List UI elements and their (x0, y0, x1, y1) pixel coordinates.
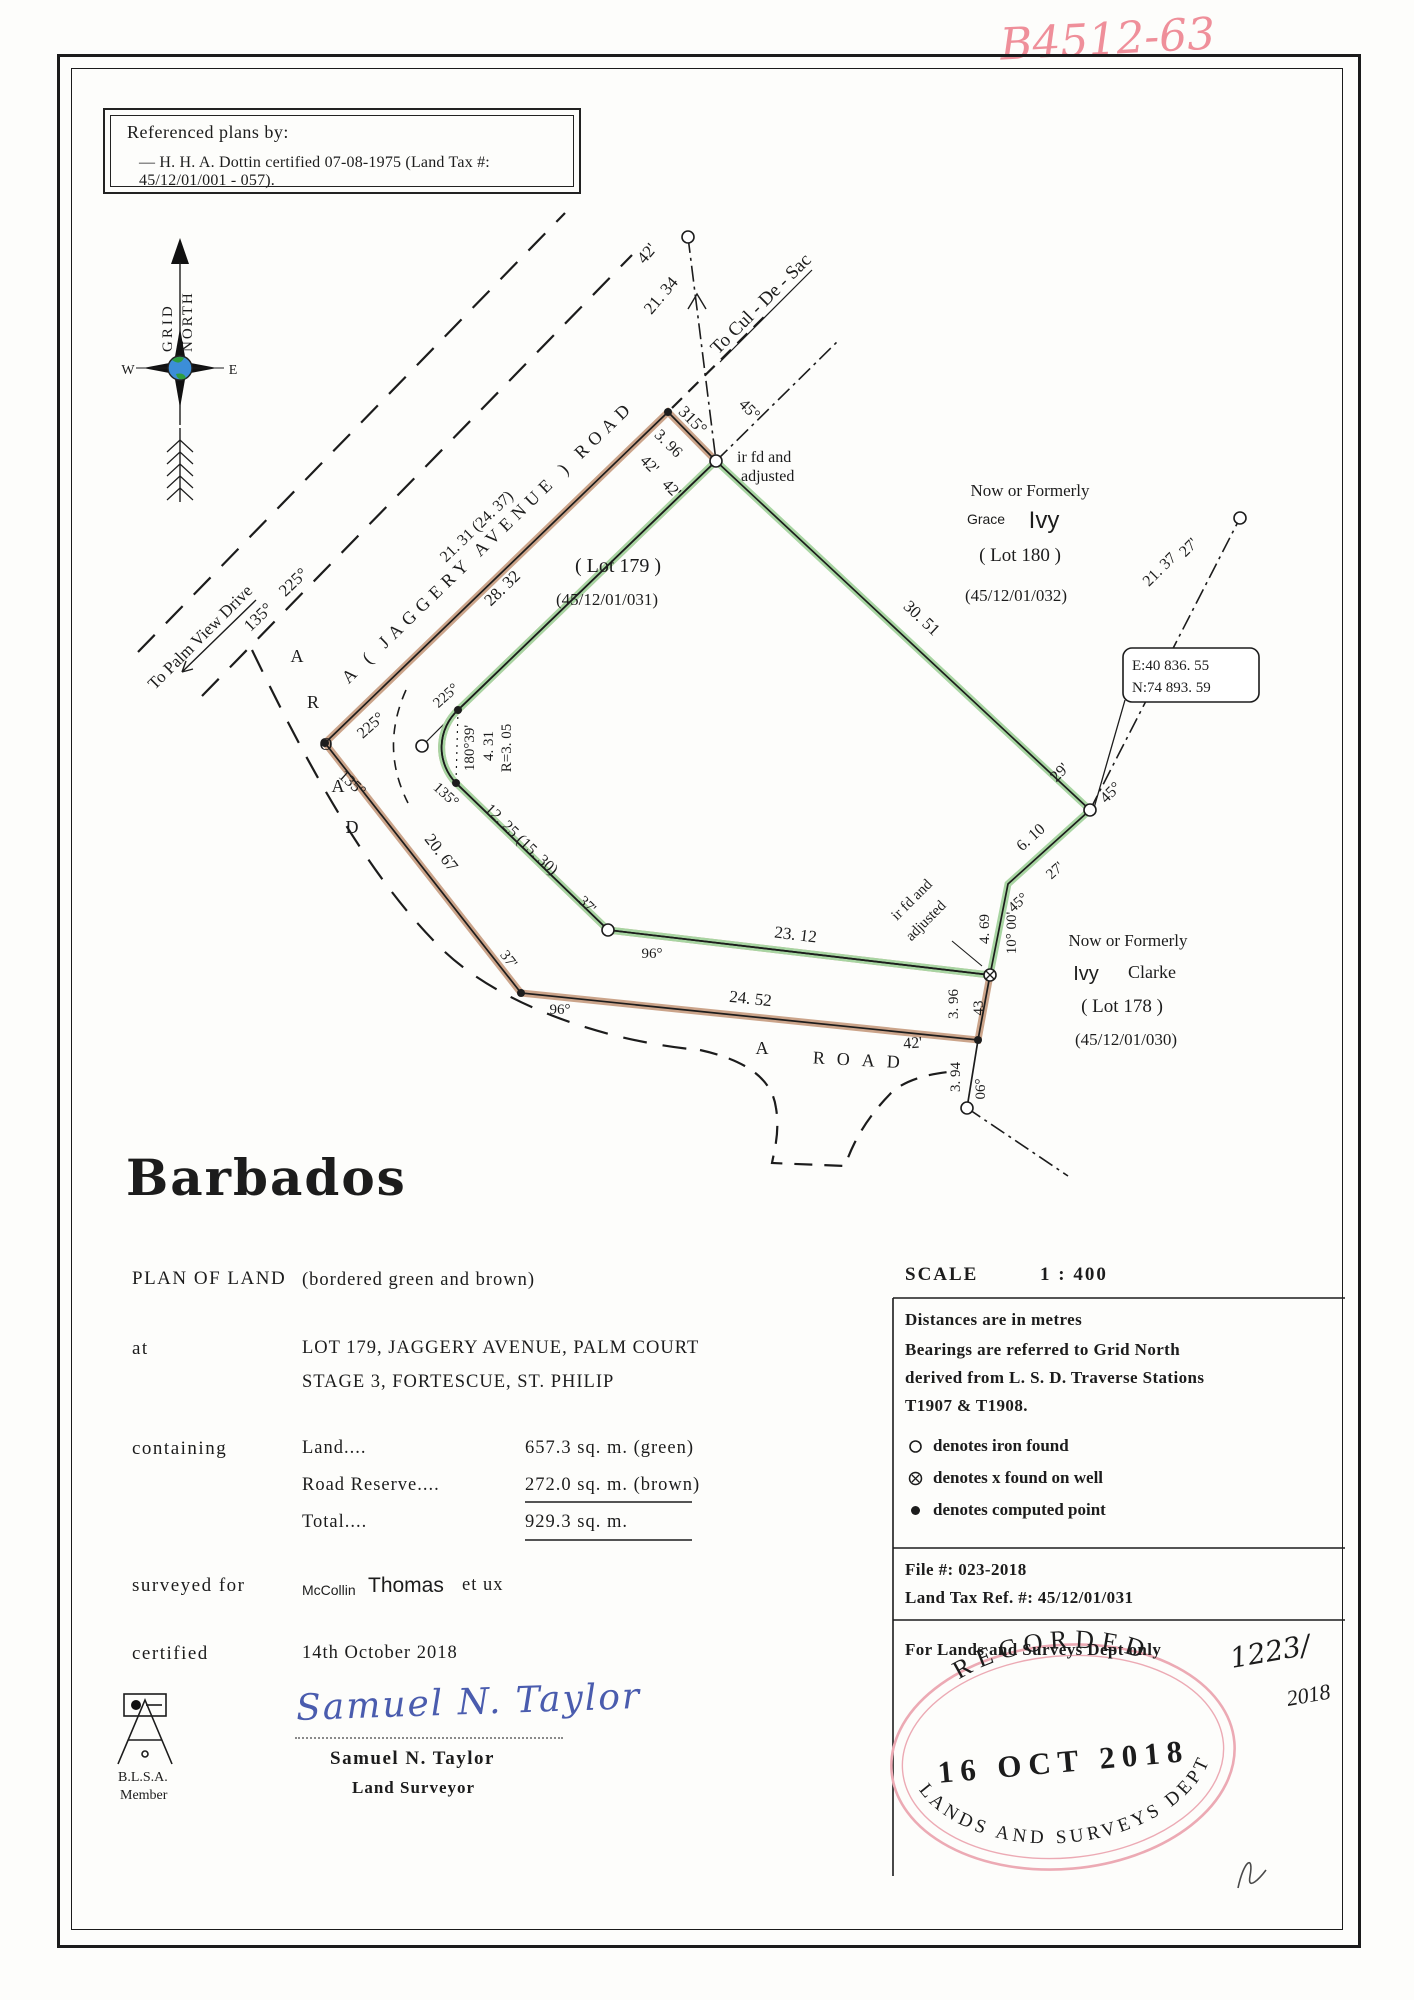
compass-north-label: NORTH (180, 291, 196, 352)
plan-label: 29' (1047, 760, 1072, 785)
compass-west-label: W (121, 363, 135, 378)
handwritten-record-number: 1223/ (1227, 1628, 1315, 1675)
client-name-prefix: McCollin (302, 1582, 356, 1598)
scale-value: 1 : 400 (1040, 1264, 1108, 1286)
handwritten-record-year: 2018 (1285, 1679, 1333, 1711)
plan-label: To Cul - De - Sac (707, 250, 816, 359)
plan-label: A (291, 646, 304, 666)
bordered-note: (bordered green and brown) (302, 1270, 535, 1291)
plan-label: Ivy (1073, 963, 1099, 985)
plan-label: 4. 31 (481, 731, 497, 761)
signature-dotted-line (295, 1735, 563, 1739)
area-row-value: 657.3 sq. m. (green) (525, 1438, 694, 1459)
coordinate-easting: E:40 836. 55 (1132, 658, 1209, 674)
client-name: Thomas (368, 1574, 444, 1598)
country-title: Barbados (126, 1148, 407, 1207)
iron-found-icon (908, 1439, 923, 1454)
plan-label: 96° (550, 1002, 571, 1018)
plan-markers (321, 231, 1246, 1114)
area-row-value: 929.3 sq. m. (525, 1512, 628, 1533)
stamp-date-text: 16 OCT 2018 (936, 1733, 1190, 1790)
coordinate-northing: N:74 893. 59 (1132, 680, 1211, 696)
curve-chord-dotted (456, 710, 458, 783)
iron-found-marker (710, 455, 722, 467)
plan-label: 10° 00' (1004, 911, 1020, 954)
legend-text: denotes x found on well (933, 1468, 1103, 1488)
survey-plan-page: B4512-63 Referenced plans by: — H. H. A.… (0, 0, 1414, 2000)
compass-grid-label: GRID (160, 303, 176, 352)
plan-label: 3. 96 (651, 426, 686, 461)
plan-label: 42' (633, 240, 660, 268)
note-bearings-2: derived from L. S. D. Traverse Stations (905, 1368, 1204, 1388)
plan-label: Now or Formerly (971, 481, 1090, 500)
note-bearings-3: T1907 & T1908. (905, 1396, 1028, 1416)
plan-label: Ivy (1029, 507, 1060, 534)
plan-label: 24. 52 (728, 987, 772, 1010)
plan-label: R (307, 692, 319, 712)
iron-found-marker (1084, 804, 1096, 816)
plan-label: ( Lot 178 ) (1081, 996, 1163, 1017)
plan-label: (45/12/01/031) (556, 590, 658, 609)
plan-label: (45/12/01/032) (965, 586, 1067, 605)
client-suffix: et ux (462, 1575, 503, 1596)
plan-labels: To Cul - De - Sac42'21. 3445°315°3. 9642… (144, 240, 1202, 1100)
plan-label: 12. 25 (15. 30) (481, 801, 561, 879)
plan-label: 27' (1176, 535, 1201, 560)
plan-label: Clarke (1128, 962, 1176, 982)
surveyed-for-label: surveyed for (132, 1575, 246, 1597)
note-distances: Distances are in metres (905, 1310, 1082, 1330)
plan-label: 4. 69 (977, 914, 993, 944)
surveyor-name: Samuel N. Taylor (330, 1748, 495, 1770)
blsa-label-line2: Member (120, 1788, 167, 1804)
file-number: File #: 023-2018 (905, 1560, 1027, 1580)
plan-label: 30. 51 (900, 597, 944, 640)
plan-label: To Palm View Drive (144, 581, 256, 693)
plan-label: 23. 12 (773, 923, 817, 947)
coordinate-box: E:40 836. 55 N:74 893. 59 (1123, 648, 1259, 702)
iron-found-marker (602, 924, 614, 936)
area-row-name: Land.... (302, 1438, 367, 1459)
site-address-line2: STAGE 3, FORTESCUE, ST. PHILIP (302, 1372, 614, 1393)
plan-label: 21. 37 (1140, 550, 1180, 590)
computed-point-marker (974, 1036, 982, 1044)
scale-label: SCALE (905, 1264, 978, 1286)
dept-only-note: For Lands and Surveys Dept only (905, 1640, 1161, 1660)
at-label: at (132, 1338, 149, 1360)
land-tax-ref: Land Tax Ref. #: 45/12/01/031 (905, 1588, 1133, 1608)
computed-point-marker (517, 989, 525, 997)
iron-found-marker (1234, 512, 1246, 524)
survey-plan-drawing: GRID NORTH W E (0, 0, 1414, 2000)
plan-label: ( Lot 179 ) (575, 555, 661, 577)
plan-label: 42' (636, 452, 661, 477)
plan-label: 3. 94 (948, 1062, 964, 1093)
iron-found-marker (961, 1102, 973, 1114)
certified-date: 14th October 2018 (302, 1643, 458, 1664)
plan-label: A ( JAGGERY AVENUE ) ROAD (338, 396, 639, 688)
iron-found-marker (416, 740, 428, 752)
plan-label: 42' (903, 1034, 923, 1052)
blsa-label-line1: B.L.S.A. (118, 1770, 168, 1786)
plan-label: adjusted (741, 468, 794, 485)
compass-north-arrowhead (171, 238, 189, 264)
x-on-well-marker (984, 969, 996, 981)
computed-point-marker (321, 739, 329, 747)
plan-label: ir fd and (737, 449, 791, 466)
plan-label: 180°39' (462, 725, 478, 771)
note-bearings-1: Bearings are referred to Grid North (905, 1340, 1180, 1360)
arrowheads-and-leaders (182, 270, 1157, 966)
plan-label: 27' (1043, 859, 1067, 883)
plan-label: 225° (275, 564, 311, 600)
area-row-value: 272.0 sq. m. (brown) (525, 1475, 700, 1496)
plan-label: A (756, 1038, 769, 1058)
surveyor-initial-mark (1238, 1863, 1266, 1888)
legend-row-computed-point: denotes computed point (908, 1500, 1106, 1520)
plan-label: (45/12/01/030) (1075, 1030, 1177, 1049)
iron-found-marker (682, 231, 694, 243)
legend-text: denotes iron found (933, 1436, 1069, 1456)
plan-label: A (332, 776, 345, 796)
plan-of-land-label: PLAN OF LAND (132, 1268, 286, 1290)
plan-label: ( Lot 180 ) (979, 545, 1061, 566)
x-on-well-icon (908, 1471, 923, 1486)
plan-label: 06° (973, 1079, 989, 1100)
plan-label: Grace (967, 511, 1005, 527)
plan-label: D (346, 817, 359, 837)
area-row-name: Road Reserve.... (302, 1475, 440, 1496)
certified-label: certified (132, 1643, 209, 1665)
legend-row-x-on-well: denotes x found on well (908, 1468, 1103, 1488)
computed-point-icon (908, 1503, 923, 1518)
plan-label: 21. 34 (640, 273, 682, 318)
surveyor-title: Land Surveyor (352, 1778, 475, 1798)
plan-label: 315° (675, 402, 711, 438)
plan-label: 96° (642, 946, 663, 962)
plan-label: Now or Formerly (1069, 931, 1188, 950)
site-address-line1: LOT 179, JAGGERY AVENUE, PALM COURT (302, 1338, 699, 1359)
computed-point-marker (664, 408, 672, 416)
computed-point-marker (452, 779, 460, 787)
compass-rose (136, 238, 224, 502)
plan-label: 3. 96 (946, 989, 962, 1020)
plan-label: 43 (971, 1001, 987, 1016)
legend-row-iron-found: denotes iron found (908, 1436, 1069, 1456)
computed-point-marker (454, 706, 462, 714)
plan-label: ROAD (812, 1047, 912, 1072)
plan-label: R=3. 05 (499, 724, 515, 772)
blsa-emblem (118, 1694, 172, 1764)
compass-east-label: E (229, 363, 238, 378)
containing-label: containing (132, 1438, 227, 1460)
area-row-name: Total.... (302, 1512, 367, 1533)
legend-text: denotes computed point (933, 1500, 1106, 1520)
